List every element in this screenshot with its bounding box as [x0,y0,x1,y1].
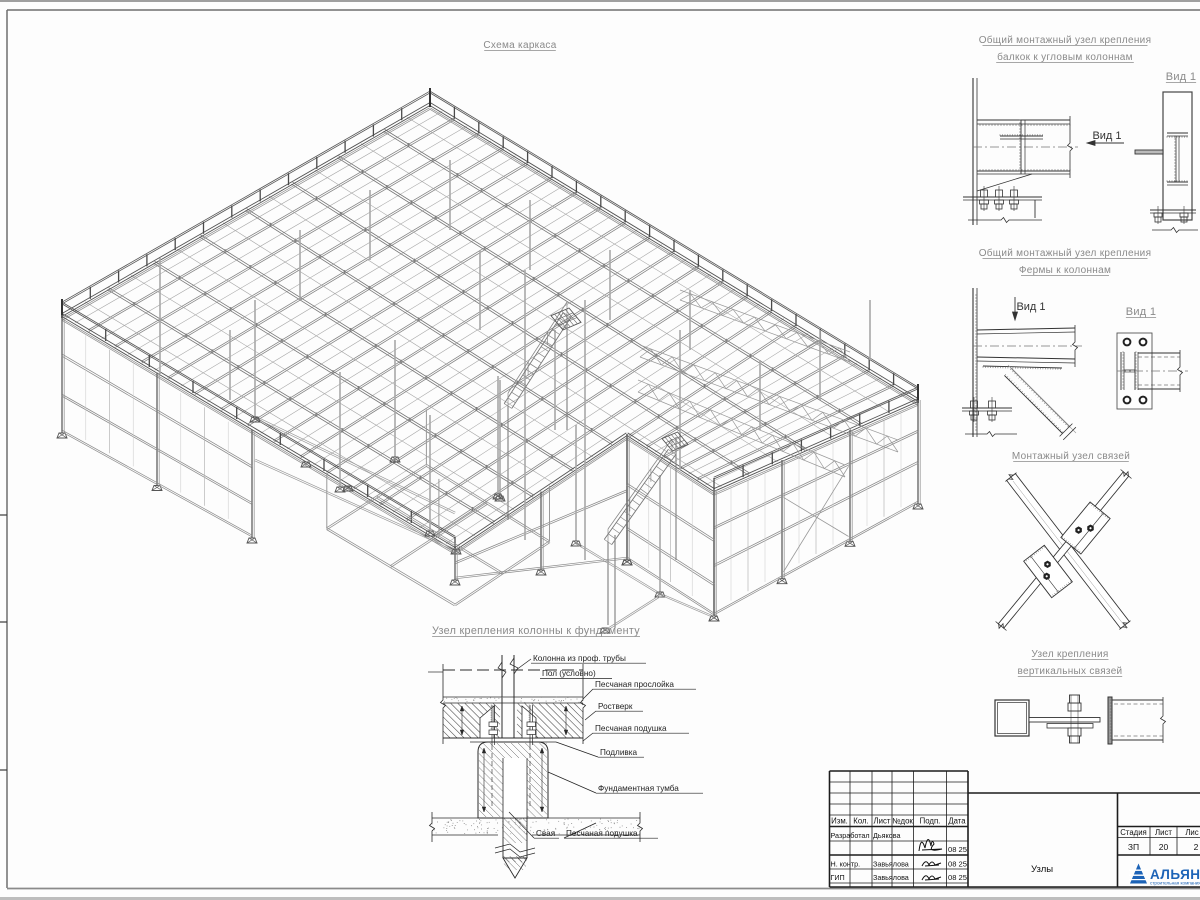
svg-text:Дата: Дата [948,817,966,826]
svg-text:№док: №док [892,817,913,826]
svg-text:Общий монтажный узел крепления: Общий монтажный узел крепления [979,247,1152,259]
svg-text:вертикальных связей: вертикальных связей [1018,666,1123,677]
svg-text:Песчаная подушка: Песчаная подушка [595,724,667,733]
svg-text:Разработал: Разработал [831,831,870,840]
svg-text:Подп.: Подп. [920,817,941,826]
svg-text:Изм.: Изм. [831,817,848,826]
svg-text:Н. контр.: Н. контр. [831,860,861,869]
svg-text:Лист: Лист [874,817,891,826]
svg-text:Пол (условно): Пол (условно) [542,669,596,678]
svg-text:Фермы к колоннам: Фермы к колоннам [1019,265,1111,276]
svg-text:Общий монтажный узел крепления: Общий монтажный узел крепления [979,34,1152,46]
svg-text:Вид 1: Вид 1 [1166,71,1197,83]
svg-text:Лист: Лист [1155,828,1172,837]
svg-text:Узел крепления: Узел крепления [1031,649,1108,660]
svg-text:Узлы: Узлы [1031,864,1053,875]
svg-text:Свая: Свая [536,829,555,838]
svg-text:08 25: 08 25 [948,860,967,869]
svg-text:Колонна из проф. трубы: Колонна из проф. трубы [533,654,626,663]
svg-text:08 25: 08 25 [948,873,967,882]
svg-text:Вид 1: Вид 1 [1016,301,1045,313]
svg-text:Кол.: Кол. [853,817,868,826]
svg-text:Схема каркаса: Схема каркаса [483,40,556,51]
svg-text:Подливка: Подливка [600,748,637,757]
svg-text:08 25: 08 25 [948,845,967,854]
svg-text:ЗП: ЗП [1128,842,1139,852]
svg-text:Песчаная подушка: Песчаная подушка [566,829,638,838]
svg-text:балкок к угловым колоннам: балкок к угловым колоннам [997,51,1133,63]
svg-text:Монтажный узел связей: Монтажный узел связей [1012,451,1130,462]
svg-text:строительная компания: строительная компания [1150,881,1200,886]
svg-text:Стадия: Стадия [1120,828,1147,837]
svg-text:Лис: Лис [1185,828,1198,837]
svg-text:Вид 1: Вид 1 [1126,306,1157,318]
svg-text:Дьякова: Дьякова [873,831,900,840]
svg-text:Вид 1: Вид 1 [1092,130,1121,142]
svg-text:Ростверк: Ростверк [598,702,633,711]
svg-text:Песчаная прослойка: Песчаная прослойка [595,680,674,689]
svg-text:20: 20 [1159,842,1169,852]
svg-text:Узел крепления колонны к фунда: Узел крепления колонны к фундаменту [432,625,640,637]
svg-text:Завьялова: Завьялова [873,873,909,882]
svg-text:Завьялова: Завьялова [873,860,909,869]
svg-text:ГИП: ГИП [831,873,845,882]
svg-text:Фундаментная тумба: Фундаментная тумба [598,784,679,793]
svg-text:2: 2 [1194,842,1199,852]
